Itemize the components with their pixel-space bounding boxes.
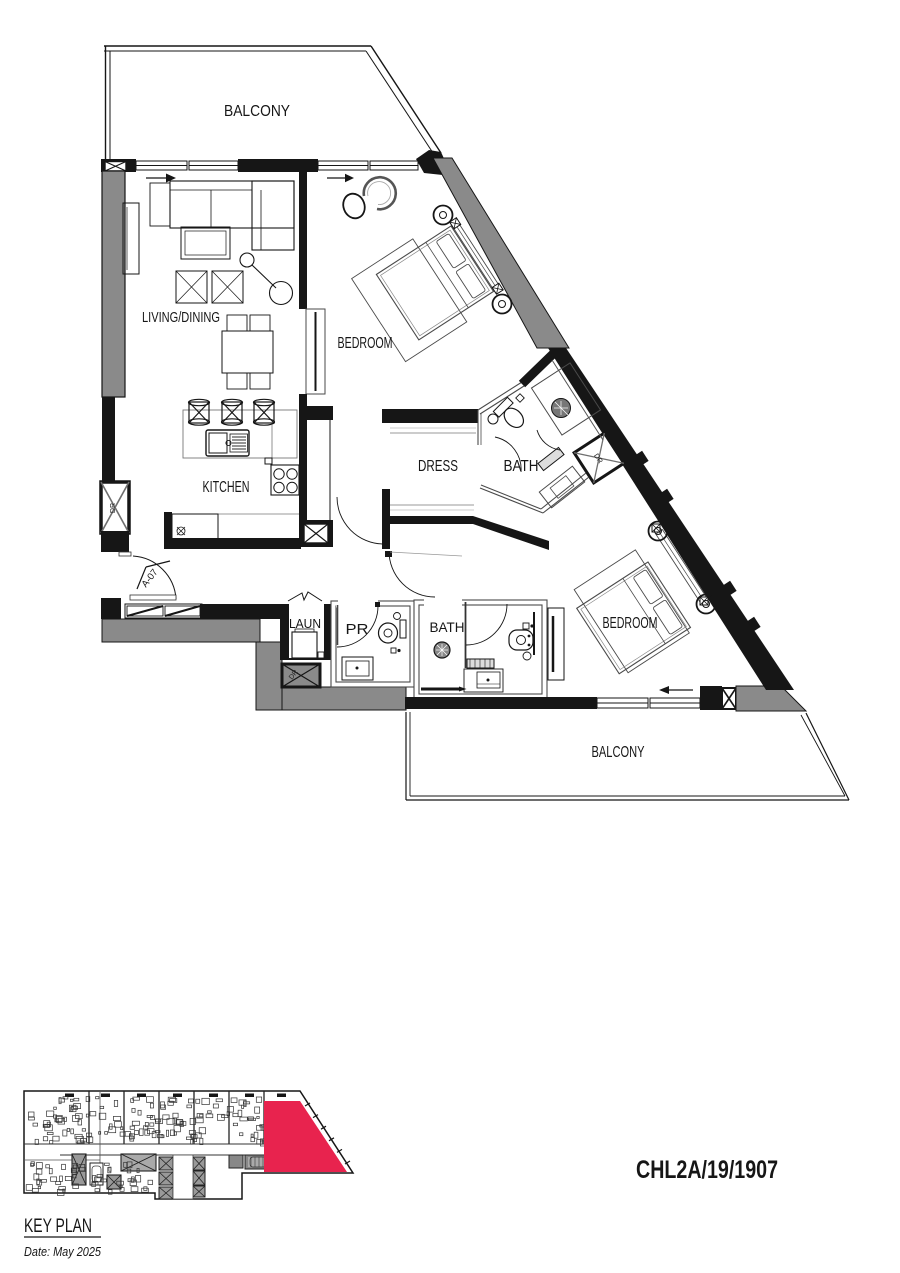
svg-text:PR: PR	[346, 622, 369, 638]
svg-text:CHL2A/19/1907: CHL2A/19/1907	[636, 1156, 778, 1184]
svg-text:Date: May 2025: Date: May 2025	[24, 1245, 101, 1259]
svg-text:KEY PLAN: KEY PLAN	[24, 1216, 92, 1237]
svg-text:BEDROOM: BEDROOM	[603, 615, 658, 632]
svg-text:BEDROOM: BEDROOM	[338, 335, 393, 352]
svg-text:DR: DR	[110, 503, 117, 513]
svg-text:BALCONY: BALCONY	[224, 103, 290, 120]
svg-text:BATH: BATH	[430, 620, 465, 635]
svg-text:KITCHEN: KITCHEN	[203, 479, 250, 496]
svg-text:DRESS: DRESS	[418, 458, 458, 475]
svg-text:LIVING/DINING: LIVING/DINING	[142, 309, 220, 326]
svg-text:BALCONY: BALCONY	[592, 744, 645, 761]
